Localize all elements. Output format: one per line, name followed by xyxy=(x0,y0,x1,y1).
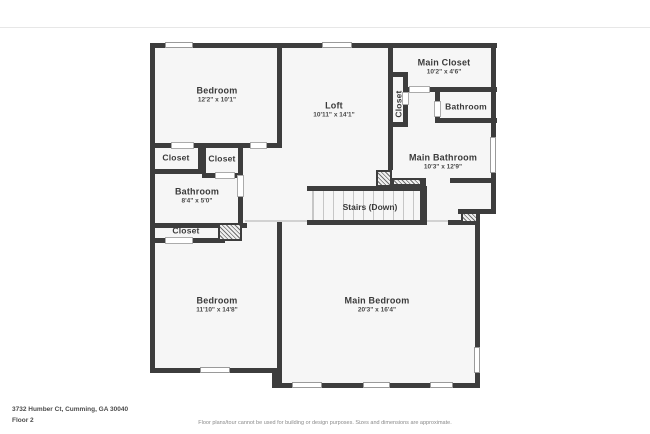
room-label-main-bathroom: Main Bathroom 10'3" x 12'9" xyxy=(409,152,477,171)
window xyxy=(200,367,230,373)
wall xyxy=(198,148,206,174)
room-label-main-closet: Main Closet 10'2" x 4'6" xyxy=(418,57,471,76)
disclaimer-text: Floor plans/tour cannot be used for buil… xyxy=(0,420,650,426)
wall xyxy=(150,169,204,174)
room-name: Closet xyxy=(208,154,235,165)
room-dims: 8'4" x 5'0" xyxy=(175,198,219,206)
address-text: 3732 Humber Ct, Cumming, GA 30040 xyxy=(12,406,128,413)
room-label-closet-a: Closet xyxy=(162,153,189,164)
room-label-bathroom-top: Bathroom xyxy=(445,102,487,113)
wall xyxy=(307,220,427,225)
room-label-bedroom1: Bedroom 12'2" x 10'1" xyxy=(197,85,238,104)
window xyxy=(322,42,352,48)
door xyxy=(171,142,194,149)
room-name: Main Bedroom xyxy=(345,295,410,306)
window xyxy=(474,347,480,373)
door xyxy=(237,175,244,197)
wall xyxy=(238,148,243,178)
room-name: Main Bathroom xyxy=(409,152,477,163)
hatch-void xyxy=(218,223,242,241)
room-dims: 20'3" x 16'4" xyxy=(345,307,410,315)
window xyxy=(430,382,453,388)
wall xyxy=(391,122,408,127)
opening-line xyxy=(245,220,307,222)
room-name: Bathroom xyxy=(445,102,487,113)
window xyxy=(490,137,496,173)
window xyxy=(363,382,390,388)
door xyxy=(215,172,235,179)
door xyxy=(409,86,430,93)
room-label-main-bedroom: Main Bedroom 20'3" x 16'4" xyxy=(345,295,410,314)
room-name: Main Closet xyxy=(418,57,471,68)
room-dims: 10'11" x 14'1" xyxy=(313,112,354,120)
wall xyxy=(150,43,155,373)
opening-line xyxy=(427,220,448,222)
room-name: Closet xyxy=(162,153,189,164)
wall xyxy=(435,118,497,123)
hatch-void xyxy=(376,170,392,187)
room-name: Bedroom xyxy=(197,85,238,96)
room-dims: 12'2" x 10'1" xyxy=(197,97,238,105)
wall xyxy=(277,220,282,388)
room-dims: 11'10" x 14'8" xyxy=(196,307,237,315)
top-divider-line xyxy=(0,27,650,28)
door xyxy=(165,237,193,244)
window xyxy=(292,382,322,388)
room-label-bathroom-mid: Bathroom 8'4" x 5'0" xyxy=(175,186,219,205)
wall xyxy=(277,43,282,148)
room-dims: 10'3" x 12'9" xyxy=(409,164,477,172)
room-label-closet-c: Closet xyxy=(172,226,199,237)
room-name: Bedroom xyxy=(196,295,237,306)
room-name: Closet xyxy=(172,226,199,237)
wall xyxy=(388,43,393,170)
window xyxy=(165,42,193,48)
room-label-bedroom2: Bedroom 11'10" x 14'8" xyxy=(196,295,237,314)
stairs-label: Stairs (Down) xyxy=(343,202,398,212)
room-dims: 10'2" x 4'6" xyxy=(418,69,471,77)
wall xyxy=(450,178,496,183)
hatch-void xyxy=(392,178,422,186)
door xyxy=(434,101,441,117)
room-name: Bathroom xyxy=(175,186,219,197)
door xyxy=(250,142,267,149)
room-label-closet-vertical: Closet xyxy=(394,90,405,117)
hatch-void xyxy=(461,212,478,223)
room-name: Loft xyxy=(313,100,354,111)
room-label-loft: Loft 10'11" x 14'1" xyxy=(313,100,354,119)
floor-plan-page: Bedroom 12'2" x 10'1" Loft 10'11" x 14'1… xyxy=(0,0,650,434)
room-name: Closet xyxy=(394,90,405,117)
wall xyxy=(491,43,496,214)
room-label-closet-b: Closet xyxy=(208,154,235,165)
